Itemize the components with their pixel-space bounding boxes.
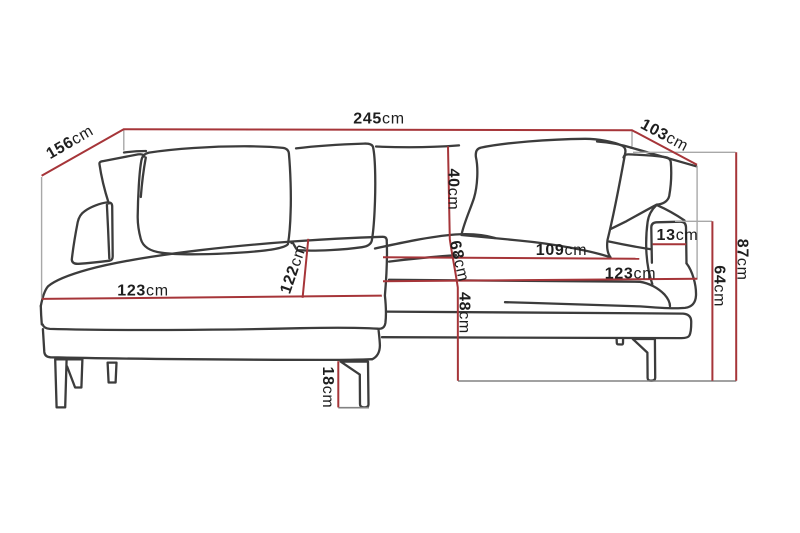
svg-text:48cm: 48cm bbox=[456, 292, 473, 334]
svg-text:103cm: 103cm bbox=[638, 116, 691, 155]
svg-text:68cm: 68cm bbox=[446, 239, 472, 284]
svg-text:109cm: 109cm bbox=[536, 242, 588, 259]
svg-text:13cm: 13cm bbox=[657, 227, 699, 244]
svg-text:123cm: 123cm bbox=[605, 265, 657, 282]
svg-text:123cm: 123cm bbox=[117, 282, 169, 299]
svg-text:40cm: 40cm bbox=[445, 169, 462, 211]
svg-text:245cm: 245cm bbox=[353, 110, 405, 127]
svg-text:156cm: 156cm bbox=[44, 122, 97, 162]
svg-text:87cm: 87cm bbox=[734, 239, 751, 281]
svg-text:64cm: 64cm bbox=[710, 265, 727, 307]
svg-text:18cm: 18cm bbox=[319, 367, 336, 409]
